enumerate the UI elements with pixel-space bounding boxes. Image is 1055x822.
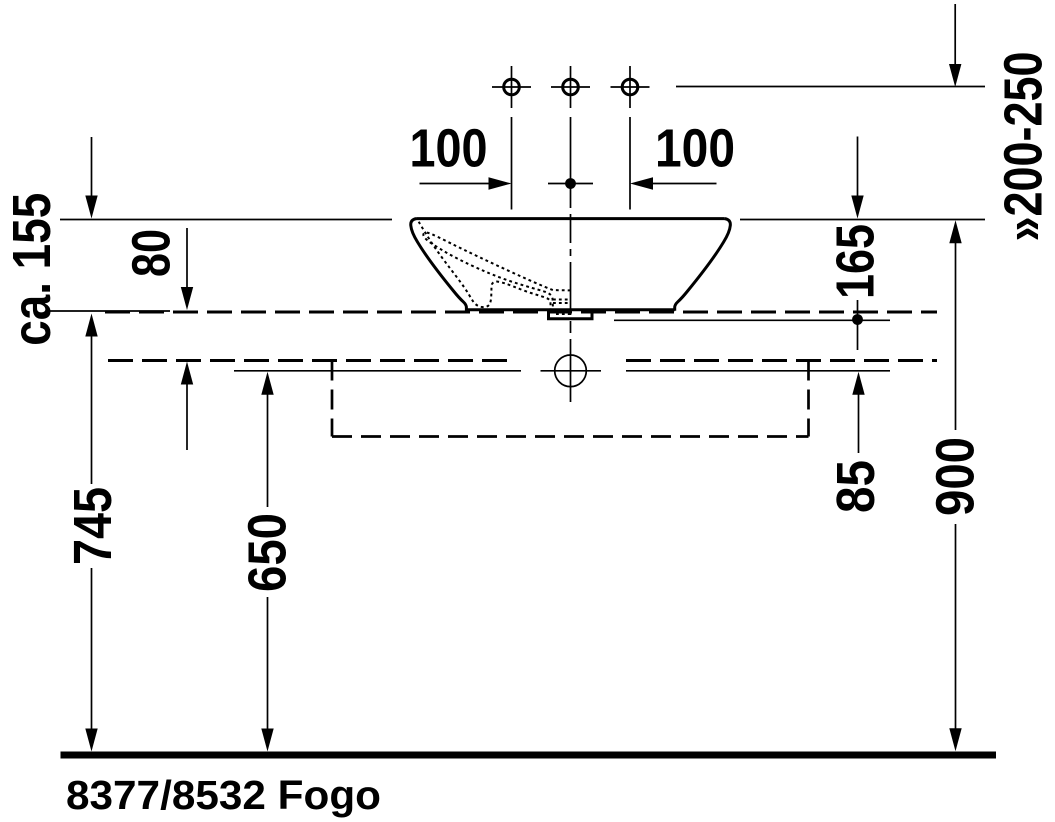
svg-text:80: 80 [122,229,182,277]
svg-text:85: 85 [826,460,886,513]
svg-text:8377/8532 Fogo: 8377/8532 Fogo [66,772,381,818]
svg-text:100: 100 [410,119,488,179]
svg-text:650: 650 [238,513,298,592]
svg-text:100: 100 [655,119,735,179]
svg-text:165: 165 [826,224,886,299]
svg-text:ca. 155: ca. 155 [2,193,62,346]
svg-text:»200-250: »200-250 [994,52,1054,242]
svg-text:745: 745 [63,487,123,565]
svg-text:900: 900 [926,437,986,516]
